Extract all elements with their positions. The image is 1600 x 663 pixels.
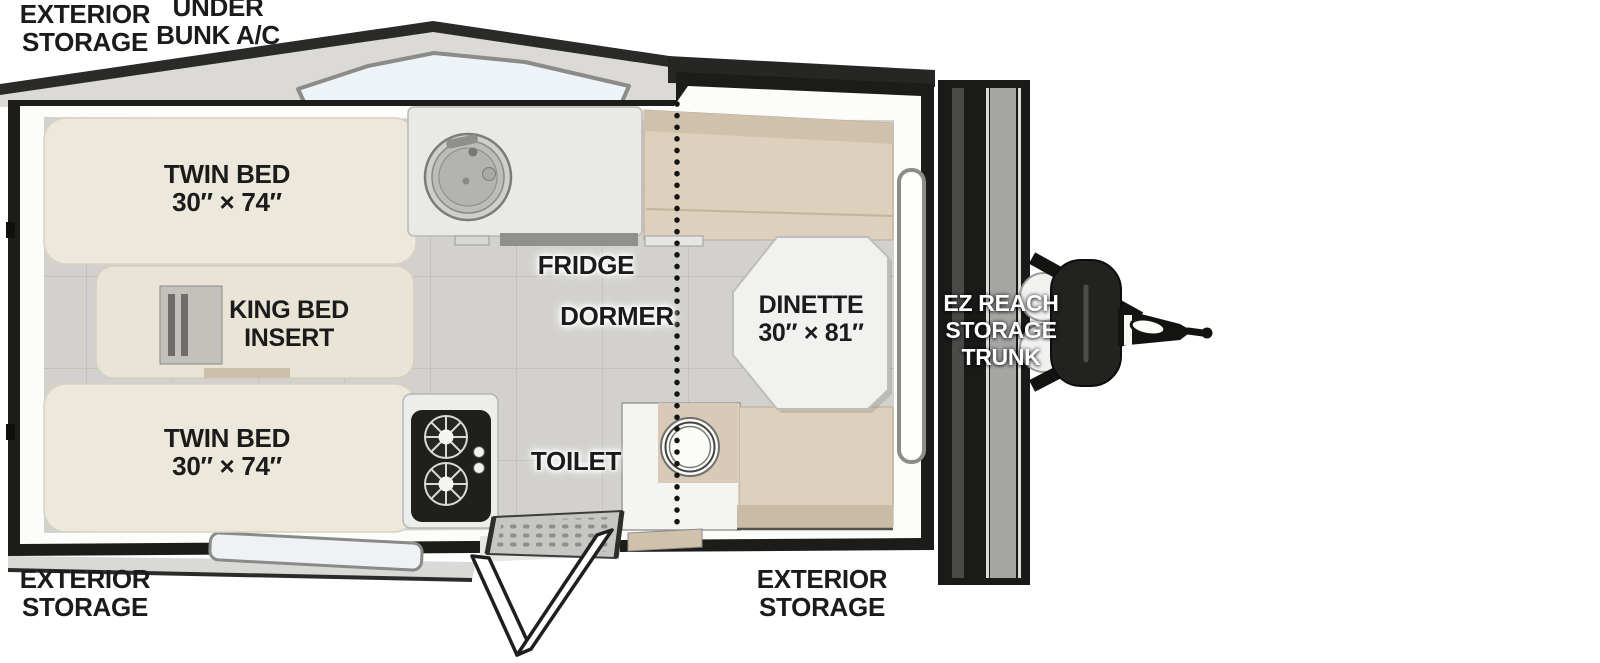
label-exterior-storage-rear-bottom: EXTERIOR STORAGE [0,565,170,621]
dinette-step [737,505,893,529]
stove-burner-icon [425,463,467,505]
shelf-strip [204,368,290,378]
rear-hinge-icon [6,222,15,238]
label-fridge: FRIDGE [486,251,686,279]
stove-burner-icon [425,416,467,458]
bench-latch-icon [645,236,703,246]
dinette-bench-front [644,110,893,246]
fridge-front [500,233,638,246]
label-exterior-storage-door-side: EXTERIOR STORAGE [722,565,922,621]
sink-counter [408,107,642,246]
label-ez-reach-storage-trunk: EZ REACH STORAGE TRUNK [901,290,1101,371]
sink [425,134,511,220]
rear-hinge-icon [6,424,15,440]
label-dormer: DORMER [517,302,717,330]
dinette-bench-rear [737,407,893,529]
label-dinette: DINETTE 30″ × 81″ [711,291,911,347]
hitch-ball-icon [1202,328,1213,339]
label-twin-bed-top: TWIN BED 30″ × 74″ [97,160,357,216]
label-toilet: TOILET [476,447,676,475]
label-king-bed-insert: KING BED INSERT [169,296,409,352]
door-threshold [628,529,702,551]
label-under-bunk-ac: UNDER BUNK A/C [118,0,318,49]
soap-dish-icon [483,168,496,181]
label-twin-bed-bottom: TWIN BED 30″ × 74″ [97,424,357,480]
floorplan-page: EXTERIOR STORAGE UNDER BUNK A/C TWIN BED… [0,0,1600,663]
